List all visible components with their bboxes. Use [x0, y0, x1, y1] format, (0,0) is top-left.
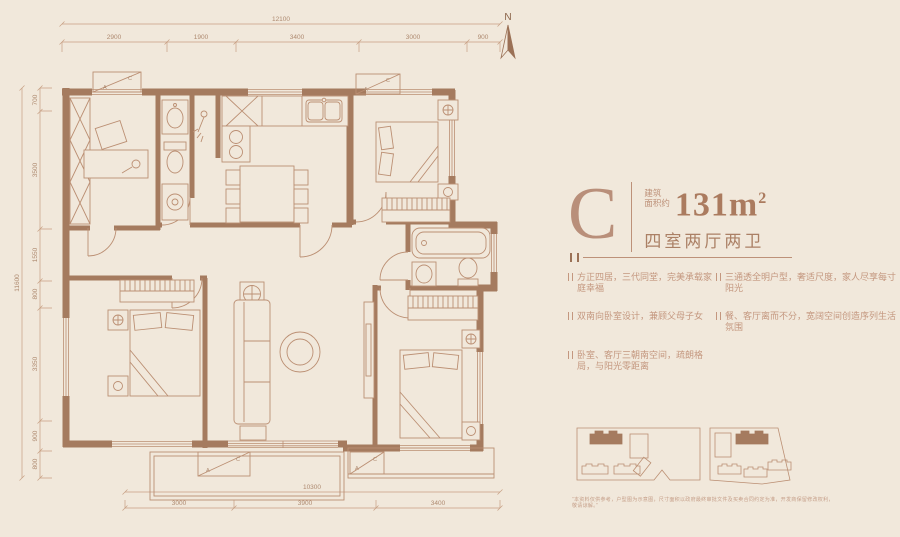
svg-text:A: A — [355, 466, 359, 472]
area-prefix-line1: 建筑 — [644, 188, 670, 198]
dim-left-seg: 800 — [32, 288, 39, 299]
room-study — [70, 98, 148, 224]
building-highlighted — [590, 431, 622, 444]
area-prefix: 建筑 面积约 — [644, 188, 670, 208]
dim-bottom-seg: 3900 — [298, 500, 313, 507]
dim-left-seg: 900 — [32, 430, 39, 441]
floorplan-page: 12100 2900 1900 3400 3000 900 11600 700 … — [0, 0, 900, 532]
area-prefix-line2: 面积约 — [644, 198, 670, 208]
dim-left-seg: 3500 — [32, 162, 39, 177]
dim-left-seg: 700 — [32, 94, 39, 105]
svg-text:C: C — [386, 78, 390, 84]
north-arrow-icon: N — [501, 12, 515, 58]
dim-left-seg: 800 — [32, 458, 39, 469]
feature-item: 卧室、客厅三朝南空间，疏朗格局，与阳光零距离 — [568, 350, 716, 372]
room-bedroom-3 — [400, 296, 480, 440]
bullet-icon — [568, 312, 573, 320]
area-power: 2 — [758, 190, 767, 207]
dim-top-seg: 3400 — [290, 34, 305, 41]
bullet-icon — [716, 273, 721, 281]
svg-text:C: C — [236, 457, 240, 463]
divider-line — [583, 257, 792, 258]
unit-type-details: 建筑 面积约 131m2 四室两厅两卫 — [631, 182, 767, 252]
bullet-icon — [568, 273, 573, 281]
dim-left-seg: 3350 — [32, 356, 39, 371]
feature-item: 三通透全明户型，奢适尺度，家人尽享每寸阳光 — [716, 272, 900, 294]
site-parcel-left — [577, 428, 700, 480]
dim-bottom-seg: 3400 — [431, 500, 446, 507]
feature-list: 方正四居，三代同堂，完美承载家庭幸福 三通透全明户型，奢适尺度，家人尽享每寸阳光… — [568, 272, 900, 372]
room-bathroom-1 — [162, 100, 207, 220]
feature-item: 双南向卧室设计，兼顾父母子女 — [568, 311, 716, 333]
dim-top-seg: 1900 — [194, 34, 209, 41]
svg-text:A: A — [364, 87, 368, 93]
dim-bottom-total: 10300 — [303, 484, 321, 491]
dim-top-seg: 3000 — [406, 34, 421, 41]
room-bedroom-2 — [376, 100, 458, 222]
svg-text:C: C — [128, 76, 132, 82]
feature-text: 餐、客厅离而不分，宽阔空间创造序列生活氛围 — [725, 311, 900, 333]
feature-item: 方正四居，三代同堂，完美承载家庭幸福 — [568, 272, 716, 294]
feature-text: 双南向卧室设计，兼顾父母子女 — [577, 311, 703, 322]
feature-item: 餐、客厅离而不分，宽阔空间创造序列生活氛围 — [716, 311, 900, 333]
room-kitchen — [222, 96, 348, 162]
dining-area — [226, 166, 308, 223]
room-bathroom-2 — [412, 228, 490, 286]
site-parcel-right — [710, 428, 791, 484]
area-number: 131 — [675, 186, 729, 223]
area-unit: m — [729, 186, 758, 223]
feature-text: 卧室、客厅三朝南空间，疏朗格局，与阳光零距离 — [577, 350, 716, 372]
feature-text: 三通透全明户型，奢适尺度，家人尽享每寸阳光 — [725, 272, 900, 294]
unit-type-letter: C — [568, 182, 617, 246]
room-layout-text: 四室两厅两卫 — [644, 227, 767, 252]
area-value: 131m2 — [675, 184, 767, 220]
section-divider — [570, 253, 792, 262]
dim-left-total: 11600 — [14, 274, 21, 292]
disclaimer-text: “本资料仅供参考，户型图为示意图，尺寸面积以政府最终审批文件及买卖合同约定为准，… — [572, 497, 838, 509]
site-plan-minimap — [572, 420, 802, 492]
dim-left-seg: 1550 — [32, 247, 39, 262]
svg-text:N: N — [504, 12, 511, 23]
room-bedroom-1 — [108, 280, 200, 396]
dim-top-seg: 2900 — [107, 34, 122, 41]
svg-text:C: C — [373, 457, 377, 463]
dim-top-total: 12100 — [272, 16, 290, 23]
bullet-icon — [716, 312, 721, 320]
svg-text:A: A — [206, 468, 210, 474]
feature-text: 方正四居，三代同堂，完美承载家庭幸福 — [577, 272, 716, 294]
unit-type-header: C 建筑 面积约 131m2 四室两厅两卫 — [568, 182, 767, 252]
dim-bottom-seg: 3000 — [172, 500, 187, 507]
svg-text:A: A — [103, 85, 107, 91]
dim-top-seg: 900 — [478, 34, 489, 41]
bullet-icon — [568, 351, 573, 359]
building-highlighted — [736, 431, 768, 444]
divider-ornament-icon — [570, 253, 579, 262]
floor-plan: 12100 2900 1900 3400 3000 900 11600 700 … — [0, 0, 560, 532]
ac-platform: A C — [350, 452, 384, 474]
room-living — [234, 282, 374, 440]
